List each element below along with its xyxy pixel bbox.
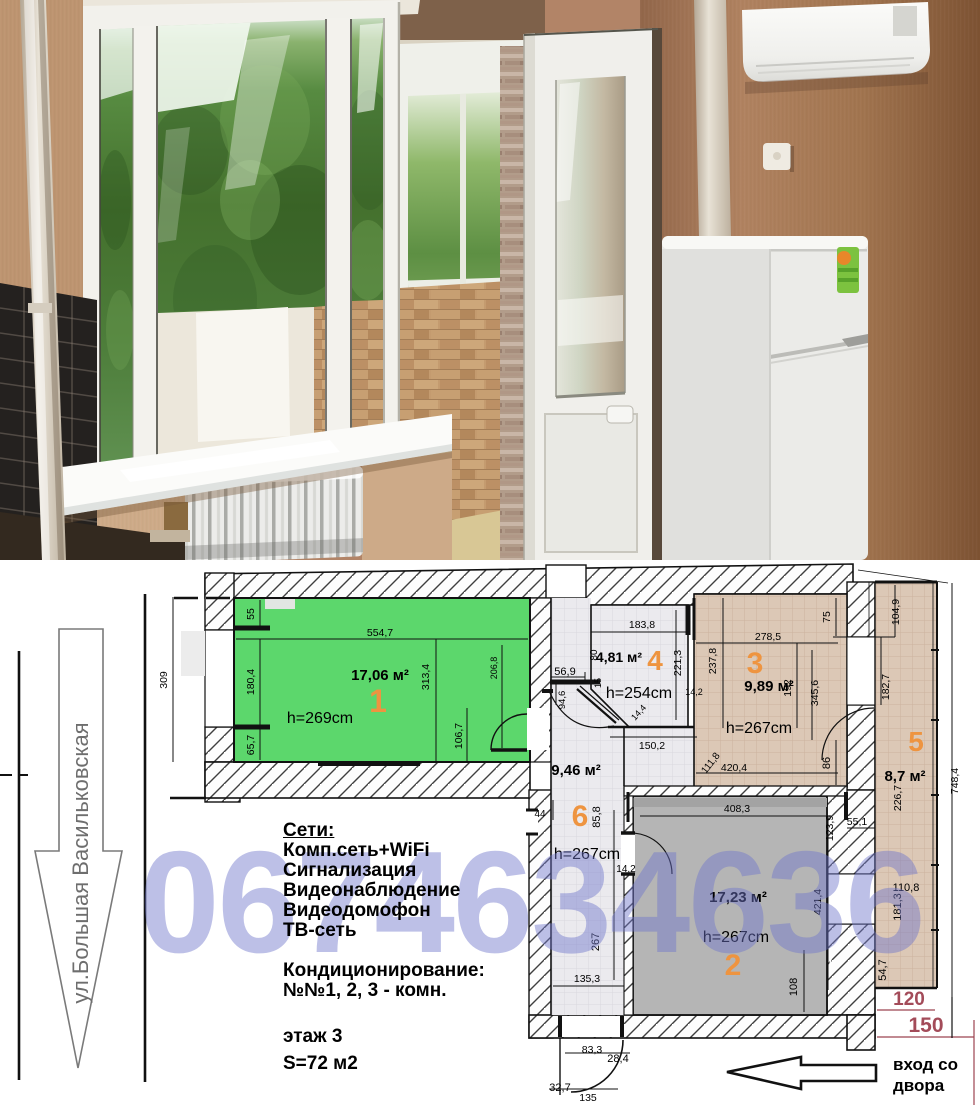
svg-text:94,6: 94,6 bbox=[557, 691, 568, 710]
svg-text:83,3: 83,3 bbox=[582, 1044, 603, 1056]
svg-text:182,7: 182,7 bbox=[880, 674, 892, 700]
svg-text:748,4: 748,4 bbox=[949, 768, 961, 794]
svg-text:4: 4 bbox=[647, 645, 663, 676]
svg-text:104,9: 104,9 bbox=[890, 599, 902, 625]
svg-text:135: 135 bbox=[579, 1092, 597, 1104]
svg-text:1: 1 bbox=[369, 683, 387, 719]
svg-text:вход со: вход со bbox=[893, 1055, 958, 1074]
svg-text:150,2: 150,2 bbox=[639, 740, 665, 752]
svg-text:15: 15 bbox=[593, 678, 603, 688]
svg-text:5: 5 bbox=[908, 726, 924, 757]
svg-text:309: 309 bbox=[158, 671, 170, 689]
svg-text:9,89 м²: 9,89 м² bbox=[744, 678, 793, 695]
svg-text:183,8: 183,8 bbox=[629, 619, 655, 631]
svg-text:86: 86 bbox=[821, 757, 833, 769]
svg-text:55: 55 bbox=[245, 608, 257, 620]
svg-text:180,4: 180,4 bbox=[245, 669, 257, 695]
svg-text:h=269cm: h=269cm bbox=[287, 710, 353, 727]
svg-text:ул.Большая Васильковская: ул.Большая Васильковская bbox=[68, 722, 93, 1003]
svg-text:206,8: 206,8 bbox=[489, 657, 499, 680]
svg-text:32,7: 32,7 bbox=[549, 1082, 570, 1094]
svg-text:237,8: 237,8 bbox=[707, 648, 719, 674]
svg-text:28,4: 28,4 bbox=[607, 1053, 628, 1065]
svg-text:408,3: 408,3 bbox=[724, 803, 750, 815]
svg-text:9,46 м²: 9,46 м² bbox=[551, 762, 600, 779]
svg-text:106,7: 106,7 bbox=[453, 723, 465, 749]
svg-text:65,7: 65,7 bbox=[245, 735, 257, 756]
svg-text:14,2: 14,2 bbox=[685, 687, 703, 697]
svg-text:8,7 м²: 8,7 м² bbox=[884, 768, 925, 785]
svg-text:150: 150 bbox=[908, 1014, 943, 1037]
svg-text:h=254cm: h=254cm bbox=[606, 685, 672, 702]
svg-text:313,4: 313,4 bbox=[420, 664, 432, 690]
svg-text:17,06 м²: 17,06 м² bbox=[351, 667, 409, 684]
svg-text:345,6: 345,6 bbox=[809, 680, 821, 706]
svg-text:221,3: 221,3 bbox=[672, 650, 684, 676]
svg-text:554,7: 554,7 bbox=[367, 627, 393, 639]
svg-text:120: 120 bbox=[893, 989, 925, 1010]
svg-text:75: 75 bbox=[821, 611, 833, 623]
svg-text:4,81 м²: 4,81 м² bbox=[596, 649, 642, 665]
svg-text:56,9: 56,9 bbox=[554, 666, 575, 678]
svg-text:h=267cm: h=267cm bbox=[726, 720, 792, 737]
svg-text:3: 3 bbox=[747, 647, 764, 680]
svg-text:278,5: 278,5 bbox=[755, 631, 781, 643]
svg-text:двора: двора bbox=[893, 1076, 945, 1095]
svg-text:226,7: 226,7 bbox=[892, 785, 904, 811]
svg-text:420,4: 420,4 bbox=[721, 762, 747, 774]
